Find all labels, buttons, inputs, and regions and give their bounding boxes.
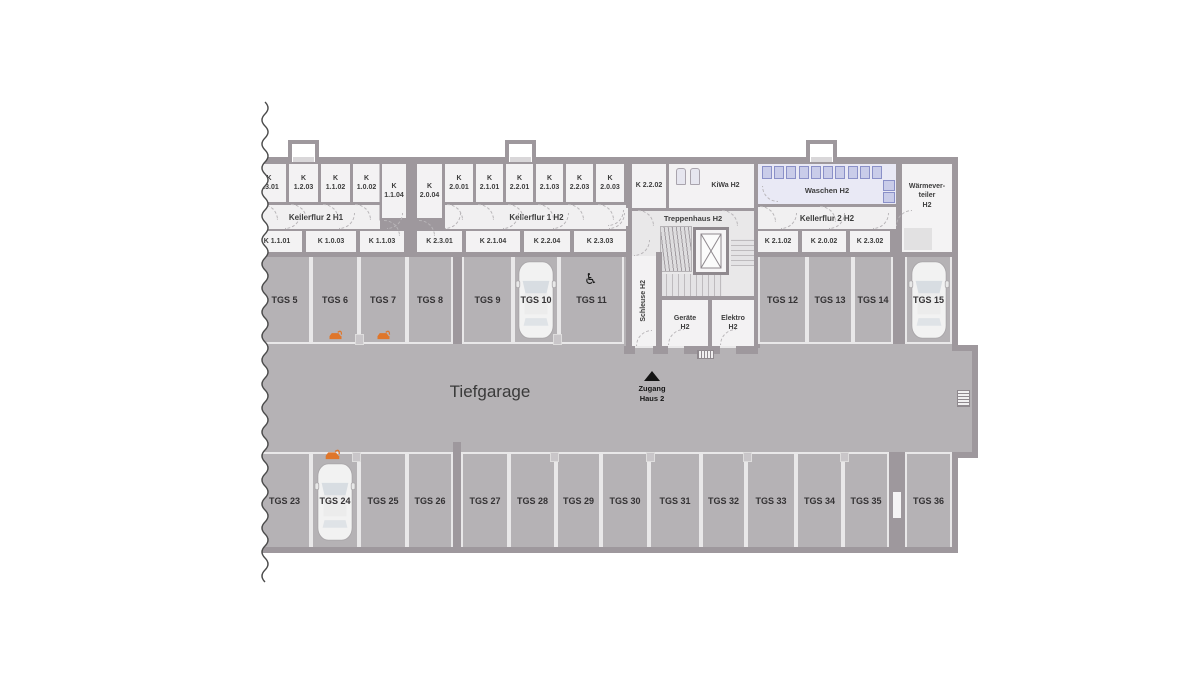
column bbox=[646, 452, 655, 462]
wall-segment bbox=[453, 442, 461, 547]
elevator-icon bbox=[693, 227, 729, 275]
ev-charging-icon bbox=[376, 329, 391, 341]
parking-spot: TGS 33 bbox=[746, 452, 796, 547]
washing-machine bbox=[883, 192, 895, 203]
ev-charging-icon bbox=[328, 329, 343, 341]
shaft-sill bbox=[510, 157, 531, 162]
heat-equipment bbox=[904, 228, 932, 250]
parking-spot: TGS 9 bbox=[462, 257, 513, 344]
washing-machine bbox=[823, 166, 833, 179]
wall-segment bbox=[453, 257, 462, 344]
keller-room: K 1.0.02 bbox=[353, 164, 380, 202]
column bbox=[355, 334, 364, 345]
entrance-arrow-icon bbox=[644, 371, 660, 381]
keller-room: K 2.0.04 bbox=[417, 164, 442, 218]
keller-room: K 1.1.04 bbox=[382, 164, 406, 218]
floor-grate bbox=[697, 350, 714, 359]
garage-bottom-wall bbox=[252, 547, 958, 553]
parking-spot: TGS 34 bbox=[796, 452, 843, 547]
stairs-icon bbox=[660, 226, 692, 272]
parking-spot: TGS 31 bbox=[649, 452, 701, 547]
wall-segment bbox=[893, 257, 905, 344]
floor-plan: Kellerflur 2 H1 K 1.3.01 K 1.2.03 K 1.1.… bbox=[0, 0, 1200, 675]
column bbox=[553, 334, 562, 345]
parking-spot: TGS 32 bbox=[701, 452, 746, 547]
washing-machine bbox=[786, 166, 796, 179]
shaft-sill bbox=[293, 157, 314, 162]
stairs-icon bbox=[660, 274, 722, 296]
keller-room: K 2.3.03 bbox=[574, 231, 626, 252]
plan-cut-edge bbox=[230, 95, 280, 605]
washing-machine bbox=[872, 166, 882, 179]
core-south-wall bbox=[736, 346, 758, 354]
vent-grate bbox=[957, 390, 970, 407]
stairs-icon bbox=[731, 239, 754, 266]
washing-machine bbox=[762, 166, 772, 179]
parking-spot: TGS 29 bbox=[556, 452, 601, 547]
parking-spot: TGS 36 bbox=[905, 452, 952, 547]
keller-room: K 1.0.03 bbox=[306, 231, 356, 252]
parking-spot: TGS 35 bbox=[843, 452, 889, 547]
column bbox=[840, 452, 849, 462]
keller-room: K 2.2.03 bbox=[566, 164, 593, 202]
column bbox=[352, 452, 361, 462]
keller-room: K 2.1.01 bbox=[476, 164, 503, 202]
parking-spot: TGS 28 bbox=[509, 452, 556, 547]
entrance-label: Zugang Haus 2 bbox=[628, 384, 676, 406]
stroller-icon bbox=[676, 168, 686, 185]
parking-spot: TGS 8 bbox=[407, 257, 453, 344]
stroller-icon bbox=[690, 168, 700, 185]
washing-machine bbox=[860, 166, 870, 179]
parking-spot: TGS 14 bbox=[853, 257, 893, 344]
washing-machine bbox=[883, 180, 895, 191]
parking-spot: TGS 26 bbox=[407, 452, 453, 547]
washing-machine bbox=[799, 166, 809, 179]
garage-title: Tiefgarage bbox=[425, 382, 555, 402]
keller-room: K 1.1.02 bbox=[321, 164, 350, 202]
washing-machine bbox=[774, 166, 784, 179]
shaft-sill bbox=[811, 157, 832, 162]
column bbox=[550, 452, 559, 462]
keller-room: K 2.2.04 bbox=[524, 231, 570, 252]
keller-room: K 2.0.01 bbox=[445, 164, 473, 202]
wheelchair-icon: ♿ bbox=[584, 270, 597, 288]
keller-room: K 2.1.04 bbox=[466, 231, 520, 252]
column bbox=[743, 452, 752, 462]
waschen-label: Waschen H2 bbox=[805, 186, 849, 196]
keller-room: K 2.2.01 bbox=[506, 164, 533, 202]
keller-room: K 2.1.03 bbox=[536, 164, 563, 202]
washing-machine bbox=[811, 166, 821, 179]
washing-machine bbox=[848, 166, 858, 179]
parking-spot: TGS 25 bbox=[359, 452, 407, 547]
keller-room: K 2.2.02 bbox=[632, 164, 666, 208]
core-south-wall bbox=[653, 346, 668, 354]
parking-spot: TGS 12 bbox=[758, 257, 807, 344]
core-south-wall bbox=[624, 346, 635, 354]
keller-room: K 1.2.03 bbox=[289, 164, 318, 202]
keller-room: K 2.3.02 bbox=[850, 231, 890, 252]
keller-room: K 2.0.02 bbox=[802, 231, 846, 252]
schleuse-label: Schleuse H2 bbox=[639, 280, 648, 322]
keller-room: K 2.1.02 bbox=[758, 231, 798, 252]
keller-room: K 2.0.03 bbox=[596, 164, 624, 202]
kiwa-label: KiWa H2 bbox=[711, 181, 739, 190]
ev-charging-icon bbox=[324, 448, 341, 461]
parking-spot: TGS 27 bbox=[461, 452, 509, 547]
wall-vent bbox=[893, 492, 901, 518]
parking-spot: TGS 13 bbox=[807, 257, 853, 344]
washing-machine bbox=[835, 166, 845, 179]
parking-spot: TGS 30 bbox=[601, 452, 649, 547]
